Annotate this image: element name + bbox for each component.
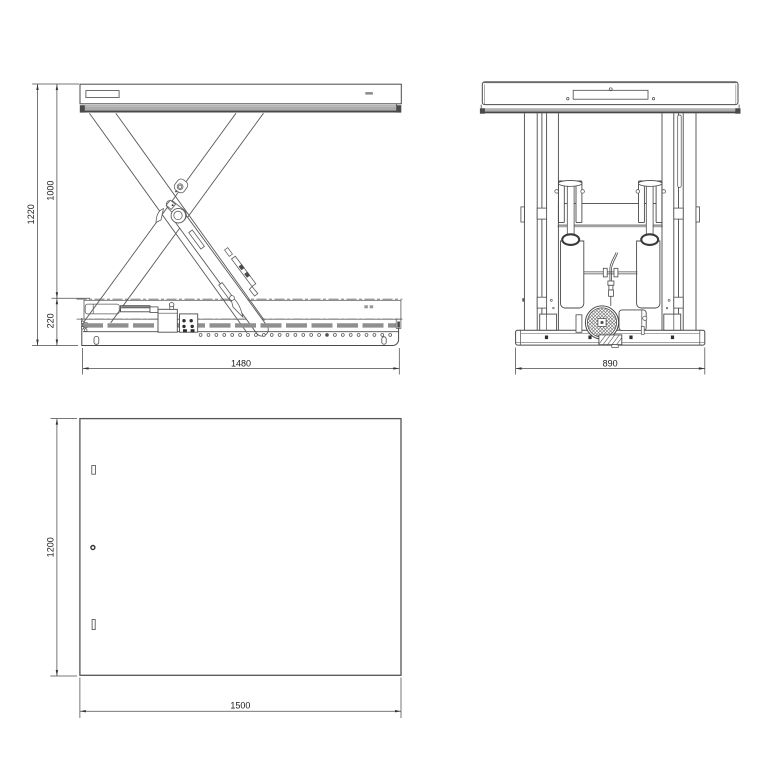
svg-text:890: 890 bbox=[603, 358, 618, 368]
svg-text:1200: 1200 bbox=[45, 537, 55, 557]
svg-text:1480: 1480 bbox=[231, 358, 251, 368]
svg-text:1220: 1220 bbox=[26, 204, 36, 224]
svg-text:220: 220 bbox=[45, 313, 55, 328]
svg-text:1000: 1000 bbox=[45, 181, 55, 201]
svg-text:1500: 1500 bbox=[230, 700, 250, 710]
